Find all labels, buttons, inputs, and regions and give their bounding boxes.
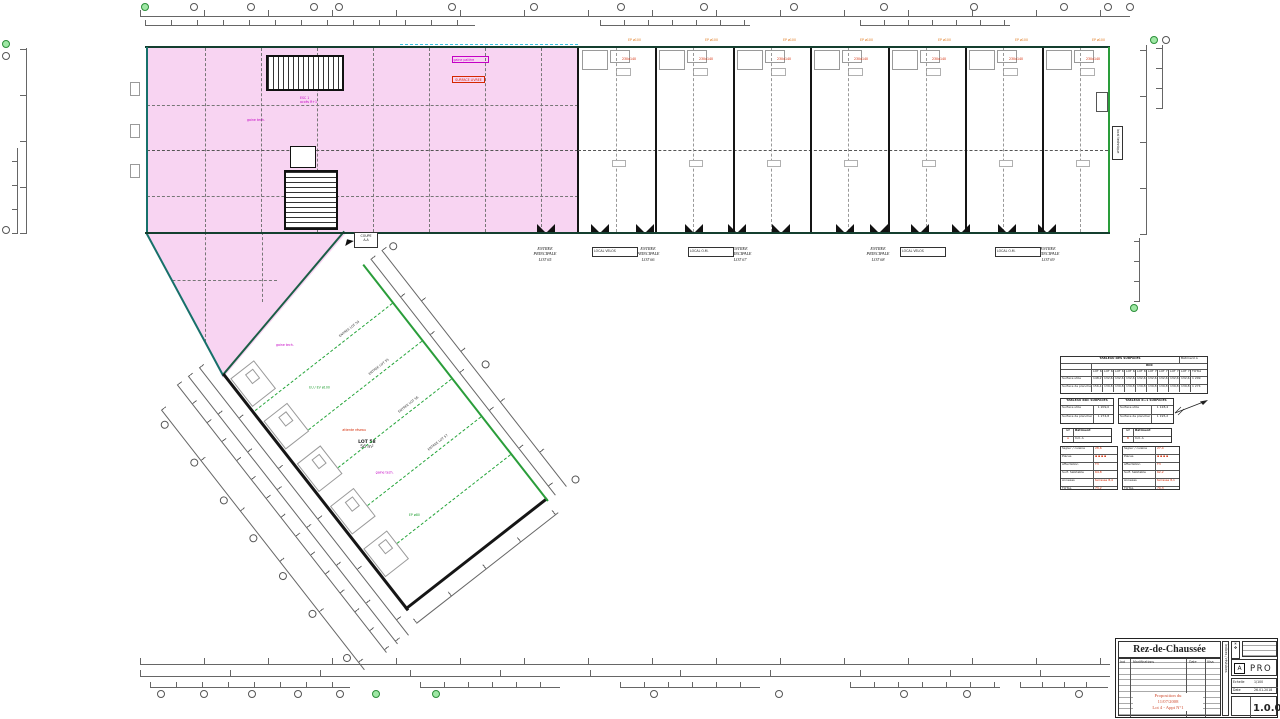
table-cell: Surface utile (1119, 406, 1151, 414)
table-cell: LOT 71 (1157, 370, 1168, 376)
unit-axis-line (1003, 48, 1004, 232)
wall-opening (130, 124, 140, 138)
lot-cartouche-b: Séjour / cuisine27,4Pièces▪ ▪ ▪ ▪Affecta… (1122, 446, 1180, 490)
north-arrow-icon (1172, 394, 1212, 418)
entrance-door-symbol (869, 223, 889, 232)
stairwell-2 (284, 170, 338, 230)
wall-division-pink (577, 48, 579, 232)
grid-bubble (1126, 3, 1134, 11)
entrance-door-symbol (835, 223, 855, 232)
grid-bubble (650, 690, 658, 698)
axis-line-mid (578, 150, 1108, 151)
unit-table-symbol (612, 160, 626, 167)
batiment-box-b: GPBâtimentBInd. A (1122, 428, 1172, 443)
dimension-chain-top (860, 20, 1010, 26)
table-cell: B (1123, 437, 1133, 443)
grid-bubble (2, 40, 10, 48)
scale-date-rows: Echelle 1/100 Date 26.01.2018 (1231, 678, 1277, 694)
grid-bubble (790, 3, 798, 11)
table-cell: ▪ ▪ ▪ ▪ (1093, 455, 1117, 462)
unit-axis-line (693, 48, 694, 232)
entrance-door-symbol (727, 223, 747, 232)
dimension-chain-bottom (150, 682, 350, 688)
batiment-box-a: GPBâtimentAInd. A (1062, 428, 1112, 443)
dimension-chain-left (12, 148, 18, 234)
revision-table: Ind Modifications Date Visa Proposition … (1118, 658, 1221, 716)
table-cell: terrasse 8,1 (1155, 479, 1179, 486)
grid-bubble (1162, 36, 1170, 44)
dimension-chain-bottom (850, 682, 1000, 688)
unit-pod-bathroom (582, 50, 608, 70)
grid-bubble (700, 3, 708, 11)
grid-bubble (617, 3, 625, 11)
table-cell: 139,8 (1168, 385, 1179, 392)
table-cell: 139,8 (1179, 385, 1190, 392)
table-cell: 70,3 (1155, 487, 1179, 490)
grid-bubble (970, 3, 978, 11)
wall-unit-divider (810, 48, 812, 232)
table-cell: TOTAL (1123, 487, 1155, 490)
grid-bubble (880, 3, 888, 11)
table-cell: 139,8 (1124, 385, 1135, 392)
unit-desk-symbol (926, 68, 941, 76)
entrance-door-symbol (997, 223, 1017, 232)
gutter-label: EP ø100 (705, 38, 718, 42)
unit-axis-line (616, 48, 617, 232)
table-cell: TABLEAU RDC SURFACES (1061, 399, 1113, 405)
entrance-door-symbol (910, 223, 930, 232)
surfaces-table-r1: TABLEAU R+1 SURFACESSurface utile1 128,4… (1118, 398, 1174, 424)
table-cell: 139,8 (1157, 385, 1168, 392)
entrance-door-symbol (590, 223, 610, 232)
unit-desk-symbol (1080, 68, 1095, 76)
grid-bubble (2, 52, 10, 60)
table-cell: LOT 72 (1168, 370, 1179, 376)
table-cell: Surface utile (1061, 406, 1093, 414)
side-strip-label: Indices / révisions (1224, 644, 1228, 673)
unit-table-symbol (922, 160, 936, 167)
table-cell: LOT 69 (1135, 370, 1146, 376)
table-cell: 73,2 (1093, 487, 1117, 490)
surfaces-table: TABLEAU DES SURFACESBâtiment ARDCLOT 65L… (1060, 356, 1208, 394)
unit-pod-bathroom (969, 50, 995, 70)
elevator-pod (1096, 92, 1108, 112)
table-cell: ▪ ▪ ▪ ▪ (1155, 455, 1179, 462)
table-cell: 1 274,8 (1093, 415, 1113, 423)
wing-edge-green (363, 264, 549, 501)
table-cell: terrasse 8,4 (1093, 479, 1117, 486)
table-cell: T3 (1093, 463, 1117, 470)
table-cell: Affectation (1123, 463, 1155, 470)
sheet-title: Rez-de-Chaussée (1133, 644, 1206, 655)
table-cell: Ind. A (1133, 437, 1171, 443)
revision-letter-box: A (1234, 663, 1245, 674)
dimension-line-bottom-2 (140, 670, 1110, 677)
unit-axis-line (926, 48, 927, 232)
table-cell: Surface de plancher (1061, 415, 1093, 423)
table-cell: Bâtiment (1073, 429, 1111, 436)
wall-opening (130, 82, 140, 96)
grid-bubble (200, 690, 208, 698)
grid-bubble (1130, 304, 1138, 312)
table-cell: 139,8 (1135, 385, 1146, 392)
table-cell: LOT 68 (1124, 370, 1135, 376)
entrance-door-symbol (536, 223, 556, 232)
wall-left (146, 47, 148, 233)
dimension-chain-right (1156, 45, 1163, 109)
elevator-shaft (290, 146, 316, 168)
unit-table-symbol (844, 160, 858, 167)
grid-bubble (1060, 3, 1068, 11)
unit-desk-symbol (616, 68, 631, 76)
table-cell: 1 209,0 (1190, 377, 1201, 384)
dimension-line-left (20, 48, 27, 234)
dimension-chain-bottom (420, 682, 560, 688)
local-box-label: LOCAL VELOS (592, 247, 638, 257)
wing-wall-main (222, 373, 409, 611)
table-cell: 132,6 (1168, 377, 1179, 384)
table-cell: 132,6 (1135, 377, 1146, 384)
unit-pod-bathroom (1046, 50, 1072, 70)
wing-note: EU / EV ø100 (309, 386, 335, 390)
table-cell: 132,6 (1124, 377, 1135, 384)
version-box: 1.0.0 (1231, 696, 1277, 716)
stairwell-1 (266, 55, 344, 91)
wall-unit-divider (965, 48, 967, 232)
table-cell: 139,8 (1146, 385, 1157, 392)
local-box-label: LOCAL VELOS (900, 247, 946, 257)
date-label: Date (1233, 688, 1241, 692)
wall-right (1108, 47, 1110, 233)
table-cell: Annexes (1123, 479, 1155, 486)
dimension-chain-top (145, 20, 475, 26)
version-label: 1.0.0 (1253, 703, 1280, 714)
entrance-door-symbol (771, 223, 791, 232)
section-marker-box: COUPEA-A (354, 232, 378, 248)
table-cell: TOTAL (1061, 487, 1093, 490)
grid-bubble (248, 690, 256, 698)
grid-bubble (190, 3, 198, 11)
table-cell: Bâtiment A (1179, 357, 1207, 363)
highlighted-lot-area: ESC 1accès R+1 gaine palière SURFACE LIV… (147, 48, 578, 232)
unit-pod-bathroom (814, 50, 840, 70)
compass-box: ✳❖ (1231, 641, 1240, 659)
table-cell: 139,8 (1113, 385, 1124, 392)
dimension-chain-bottom (620, 682, 760, 688)
date-value: 26.01.2018 (1254, 688, 1272, 692)
dimension-line-top (140, 10, 1130, 17)
wall-top-cyan-dashed (400, 44, 578, 45)
entrance-door-symbol (951, 223, 971, 232)
table-cell: RDC (1091, 364, 1207, 369)
grid-bubble (900, 690, 908, 698)
wall-bottom (145, 232, 1110, 234)
unit-dim-note: 230x140 (1009, 57, 1023, 61)
table-cell: GP (1063, 429, 1073, 436)
rev-col-desc: Modifications (1133, 660, 1154, 664)
gutter-label: EP ø100 (783, 38, 796, 42)
unit-desk-symbol (693, 68, 708, 76)
table-cell: TABLEAU DES SURFACES (1061, 357, 1179, 363)
unit-dim-note: 230x140 (932, 57, 946, 61)
unit-table-symbol (999, 160, 1013, 167)
surfaces-table-rdc: TABLEAU RDC SURFACESSurface utile1 209,0… (1060, 398, 1114, 424)
grid-bubble (530, 3, 538, 11)
table-cell: 148,2 (1091, 377, 1102, 384)
scale-value: 1/100 (1254, 680, 1263, 684)
grid-bubble (1075, 690, 1083, 698)
dimension-chain-top (600, 20, 750, 26)
grid-bubble (157, 690, 165, 698)
table-cell: Surf. habitable (1123, 471, 1155, 478)
table-cell: 156,4 (1091, 385, 1102, 392)
gaine-annotation: gaine palière (452, 56, 489, 63)
table-cell: Surf. habitable (1061, 471, 1093, 478)
dimension-line-right (1140, 45, 1147, 235)
rev-col-ind: Ind (1120, 660, 1125, 664)
table-cell: LOT 73 (1179, 370, 1190, 376)
unit-axis-line (848, 48, 849, 232)
wing-note: gaine tech. (376, 471, 402, 475)
red-annotation-box: SURFACE LIVREE (452, 76, 485, 83)
sheet-title-box: Rez-de-Chaussée (1118, 641, 1221, 658)
unit-dim-note: 230x140 (854, 57, 868, 61)
table-cell: 1 274,8 (1190, 385, 1201, 392)
unit-table-symbol (767, 160, 781, 167)
unit-desk-symbol (771, 68, 786, 76)
unit-pod-bathroom (737, 50, 763, 70)
table-cell: 28,6 (1093, 447, 1117, 454)
entrance-door-symbol (684, 223, 704, 232)
table-cell (1061, 370, 1091, 376)
red-note: Proposition du 11/07/2008 Lot 4 - Appt N… (1133, 693, 1203, 711)
lot-cartouche-a: Séjour / cuisine28,6Pièces▪ ▪ ▪ ▪Affecta… (1060, 446, 1118, 490)
table-cell: Séjour / cuisine (1061, 447, 1093, 454)
table-cell: Annexes (1061, 479, 1093, 486)
grid-bubble (1150, 36, 1158, 44)
grid-bubble (336, 690, 344, 698)
table-cell: 64,8 (1093, 471, 1117, 478)
table-cell: 1 209,0 (1093, 406, 1113, 414)
table-cell: LOT 65 (1091, 370, 1102, 376)
scale-label: Echelle (1233, 680, 1244, 684)
wing-divider-green (255, 303, 393, 411)
gutter-label: EP ø100 (628, 38, 641, 42)
wall-unit-divider (1042, 48, 1044, 232)
unit-dim-note: 230x140 (699, 57, 713, 61)
entrance-label-lot68: ENTREEPRINCIPALELOT 68 (851, 246, 905, 262)
unit-dim-note: 230x140 (622, 57, 636, 61)
wing-note: EP ø80 (409, 513, 435, 517)
table-cell: Bâtiment (1133, 429, 1171, 436)
unit-axis-line (771, 48, 772, 232)
local-box-label: LOCAL O.M. (995, 247, 1041, 257)
entrance-label-lot65: ENTREEPRINCIPALELOT 65 (518, 246, 572, 262)
side-strip: Indices / révisions (1222, 641, 1229, 716)
table-cell: Surface de plancher (1119, 415, 1151, 423)
dimension-chain-bottom (1020, 682, 1108, 688)
wall-opening (130, 164, 140, 178)
dimension-chain-right-low (1134, 238, 1140, 302)
revision-letter: A (1237, 665, 1241, 672)
table-cell: TABLEAU R+1 SURFACES (1119, 399, 1173, 405)
wing-note: gaine tech. (276, 343, 302, 347)
unit-pod-bathroom (659, 50, 685, 70)
table-cell: 1 195,2 (1151, 415, 1173, 423)
table-cell: Pièces (1123, 455, 1155, 462)
section-arrow (345, 239, 354, 248)
table-cell: Pièces (1061, 455, 1093, 462)
wing-note: attente réseau (342, 428, 368, 432)
unit-pod-bathroom (892, 50, 918, 70)
info-mini-rows (1242, 641, 1277, 657)
table-cell: Ind. A (1073, 437, 1111, 443)
rev-col-visa: Visa (1207, 660, 1214, 664)
table-cell: 132,6 (1113, 377, 1124, 384)
phase-box: A PRO (1231, 659, 1277, 676)
gutter-label: EP ø100 (860, 38, 873, 42)
table-cell: Surface utile (1061, 377, 1091, 384)
gutter-label: EP ø100 (1015, 38, 1028, 42)
table-cell: 132,6 (1102, 377, 1113, 384)
floor-plan-sheet: ESC 1accès R+1 gaine palière SURFACE LIV… (0, 0, 1280, 719)
grid-bubble (1104, 3, 1112, 11)
table-cell: 132,6 (1157, 377, 1168, 384)
grid-bubble (141, 3, 149, 11)
rev-col-date: Date (1189, 660, 1197, 664)
grid-bubble (963, 690, 971, 698)
unit-axis-line (1080, 48, 1081, 232)
table-cell: 1 128,4 (1151, 406, 1173, 414)
table-cell: 132,6 (1146, 377, 1157, 384)
grid-bubble (310, 3, 318, 11)
title-block: Rez-de-Chaussée Ind Modifications Date V… (1115, 638, 1278, 718)
table-cell: Affectation (1061, 463, 1093, 470)
tech-room-label: local technique (1112, 126, 1123, 160)
table-cell: 139,8 (1102, 385, 1113, 392)
unit-desk-symbol (1003, 68, 1018, 76)
table-cell: LOT 66 (1102, 370, 1113, 376)
gutter-label: EP ø100 (938, 38, 951, 42)
grid-bubble (775, 690, 783, 698)
table-cell: Séjour / cuisine (1123, 447, 1155, 454)
local-box-label: LOCAL O.M. (688, 247, 734, 257)
unit-table-symbol (1076, 160, 1090, 167)
table-cell: T3 (1155, 463, 1179, 470)
grid-bubble (570, 474, 581, 485)
grid-bubble (448, 3, 456, 11)
wall-unit-divider (655, 48, 657, 232)
entrance-door-symbol (1037, 223, 1057, 232)
phase-label: PRO (1250, 664, 1272, 674)
grid-bubble (2, 226, 10, 234)
gaine-annotation-2: gaine tech. (247, 118, 277, 122)
dimension-line-bottom (140, 658, 1110, 665)
stair-annotation: ESC 1accès R+1 (300, 96, 336, 104)
unit-dim-note: 230x140 (1086, 57, 1100, 61)
table-cell: TOTAL (1190, 370, 1201, 376)
gutter-label: EP ø100 (1092, 38, 1105, 42)
table-cell: A (1063, 437, 1073, 443)
wall-unit-divider (733, 48, 735, 232)
grid-bubble (335, 3, 343, 11)
unit-table-symbol (689, 160, 703, 167)
unit-desk-symbol (848, 68, 863, 76)
table-cell: 27,4 (1155, 447, 1179, 454)
grid-bubble (372, 690, 380, 698)
table-cell: 132,6 (1179, 377, 1190, 384)
table-cell: LOT 67 (1113, 370, 1124, 376)
table-cell: Surface de plancher (1061, 385, 1091, 392)
unit-dim-note: 230x140 (777, 57, 791, 61)
table-cell: LOT 70 (1146, 370, 1157, 376)
grid-bubble (247, 3, 255, 11)
entrance-door-symbol (635, 223, 655, 232)
table-cell: GP (1123, 429, 1133, 436)
grid-bubble (294, 690, 302, 698)
table-cell: 62,2 (1155, 471, 1179, 478)
table-cell (1061, 364, 1091, 369)
grid-bubble (432, 690, 440, 698)
wall-unit-divider (888, 48, 890, 232)
